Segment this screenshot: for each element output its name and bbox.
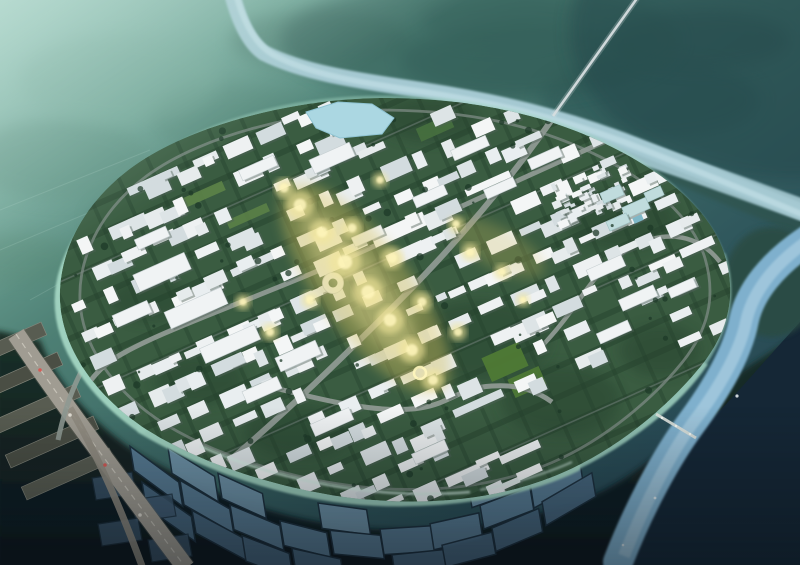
aerial-city-rendering	[0, 0, 800, 565]
vignette	[0, 0, 800, 565]
scene-svg	[0, 0, 800, 565]
